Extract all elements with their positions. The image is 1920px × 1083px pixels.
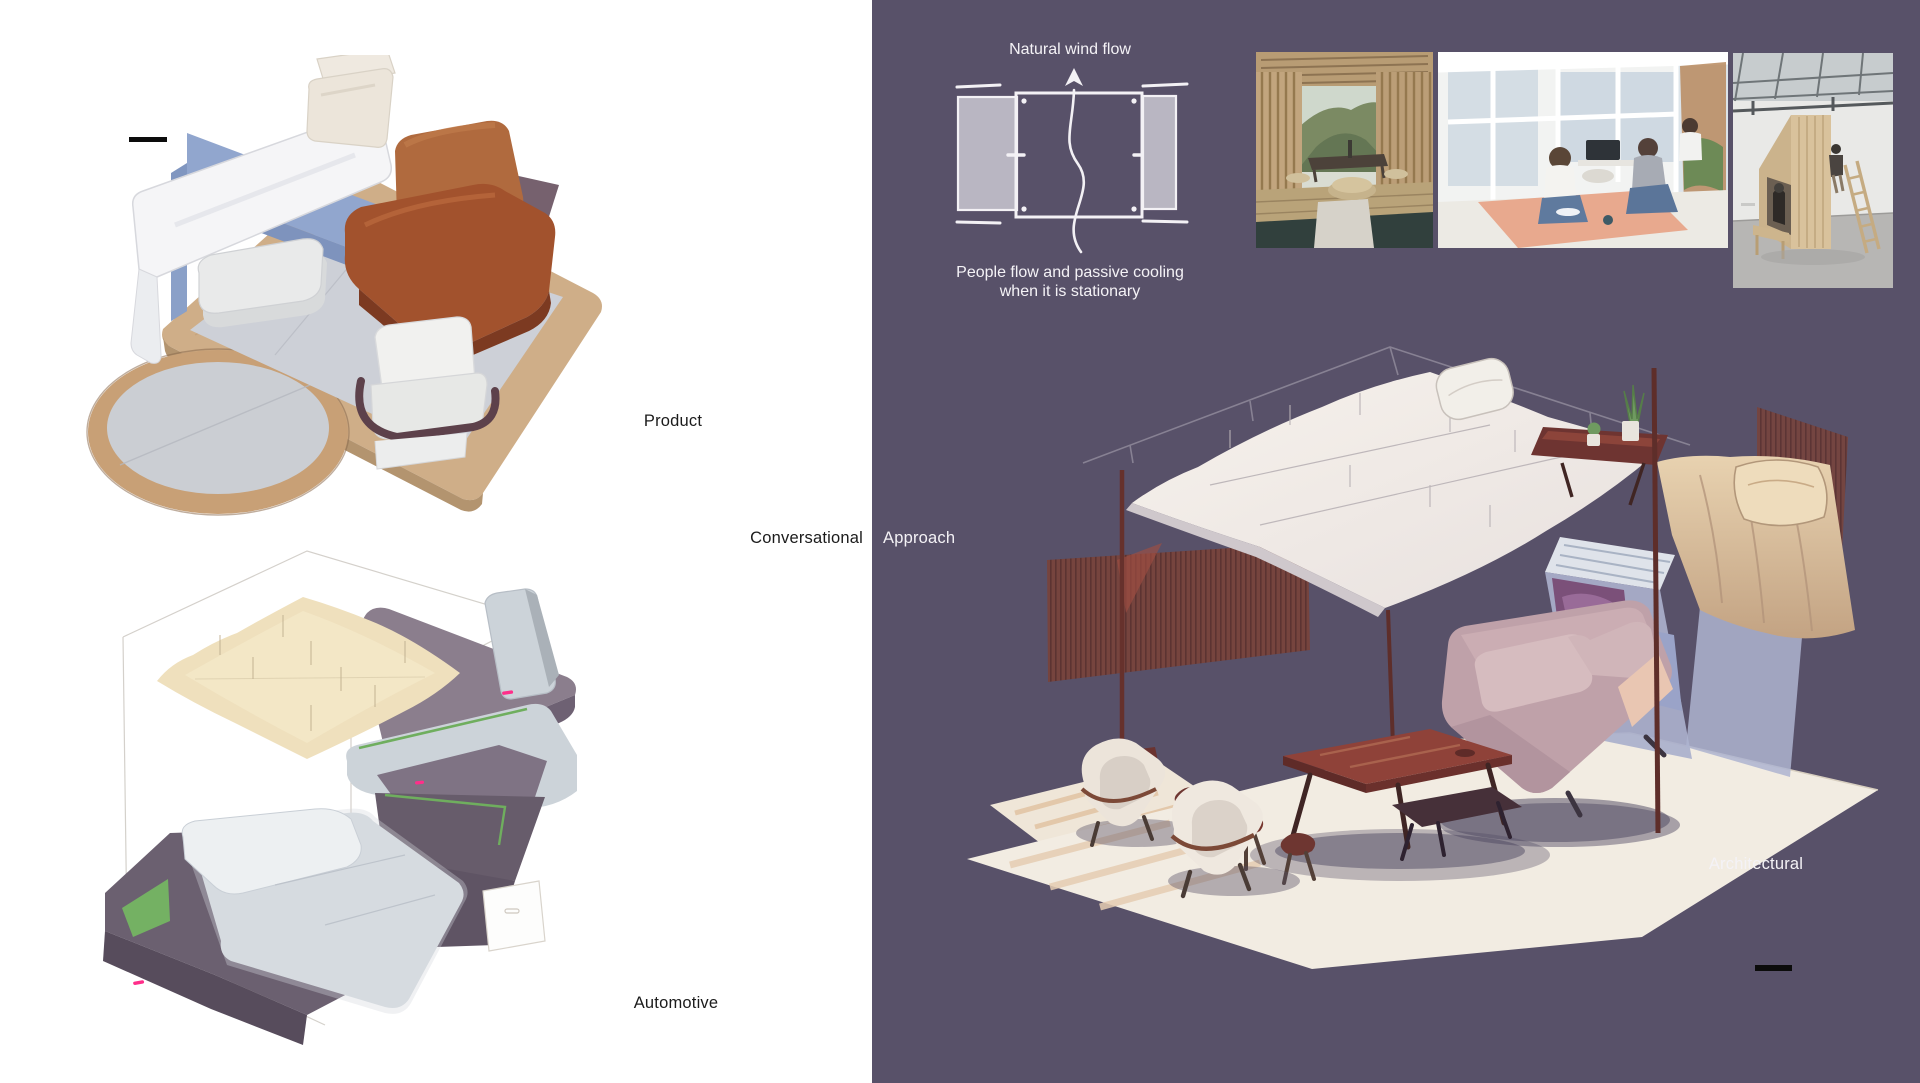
automotive-sketch-illustration <box>75 545 805 1070</box>
drawer-box <box>483 881 545 951</box>
product-sketch-illustration <box>75 55 685 535</box>
plywood-hut-workshop-photo <box>1733 53 1893 288</box>
conversational-label: Conversational <box>700 529 863 548</box>
room-rect <box>1016 93 1142 217</box>
right-panel-rect <box>1143 96 1176 209</box>
tan-curtain <box>1657 456 1855 639</box>
automotive-label: Automotive <box>616 994 736 1013</box>
wind-arrow <box>1065 68 1084 252</box>
wind-diagram-caption: People flow and passive cooling when it … <box>920 263 1220 301</box>
architectural-label: Architectural <box>1695 855 1817 874</box>
left-mesh-panel <box>1047 543 1310 682</box>
architectural-sketch-illustration <box>930 335 1920 985</box>
product-label: Product <box>618 412 728 431</box>
wind-diagram-title: Natural wind flow <box>935 41 1205 59</box>
glass-house-gathering-photo <box>1438 52 1728 248</box>
wind-flow-diagram <box>940 60 1192 260</box>
bamboo-pavilion-photo <box>1256 52 1433 248</box>
